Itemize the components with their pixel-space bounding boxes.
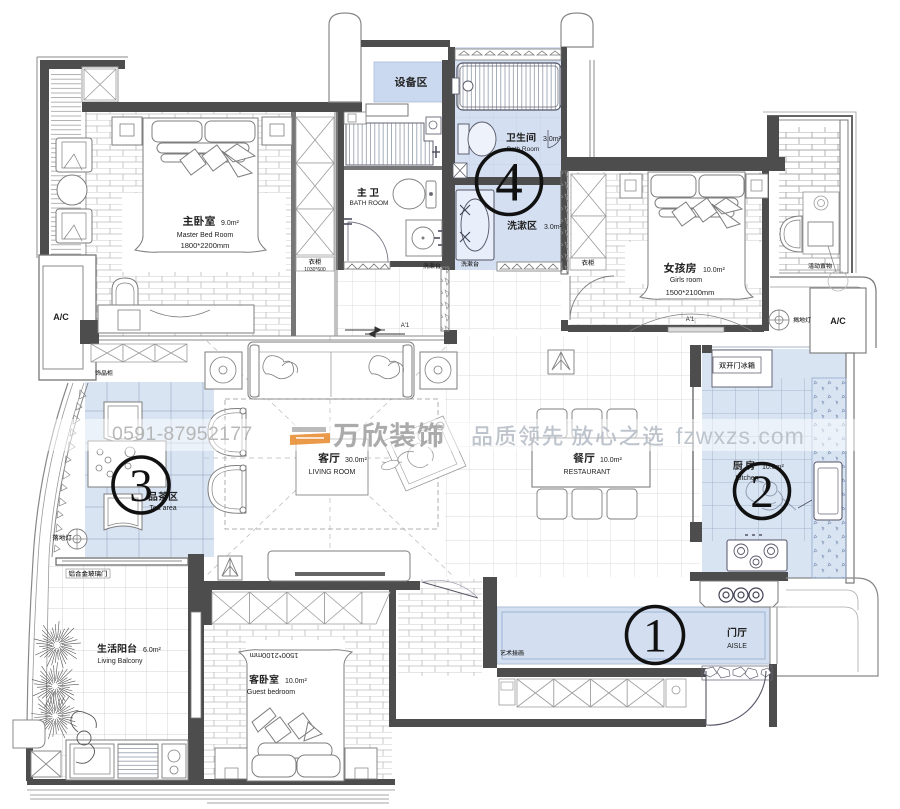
svg-text:AISLE: AISLE <box>727 643 747 650</box>
svg-text:10.0m²: 10.0m² <box>600 457 622 464</box>
svg-text:A/C: A/C <box>53 312 69 322</box>
svg-text:2: 2 <box>750 466 774 518</box>
svg-text:Master Bed Room: Master Bed Room <box>177 232 234 239</box>
svg-text:3.0m²: 3.0m² <box>543 136 562 143</box>
svg-text:RESTAURANT: RESTAURANT <box>564 469 612 476</box>
svg-text:A'1: A'1 <box>686 317 695 323</box>
svg-text:Guest bedroom: Guest bedroom <box>247 689 295 696</box>
svg-text:1030*600: 1030*600 <box>304 267 326 273</box>
svg-text:1800*2200mm: 1800*2200mm <box>181 241 230 250</box>
svg-text:10.0m²: 10.0m² <box>703 267 725 274</box>
svg-text:3.0m²: 3.0m² <box>544 224 563 231</box>
svg-text:9.0m²: 9.0m² <box>221 220 240 227</box>
svg-text:6.0m²: 6.0m² <box>143 647 162 654</box>
svg-text:A'1: A'1 <box>401 323 410 329</box>
svg-text:fzwxzs.com: fzwxzs.com <box>676 423 805 449</box>
svg-text:1500*2100mm: 1500*2100mm <box>250 651 299 660</box>
svg-text:30.0m²: 30.0m² <box>345 457 367 464</box>
svg-text:Living Balcony: Living Balcony <box>97 658 143 665</box>
svg-text:1: 1 <box>643 609 667 662</box>
svg-text:Girls room: Girls room <box>670 277 702 284</box>
svg-text:A/C: A/C <box>830 316 846 326</box>
svg-text:4: 4 <box>495 152 523 213</box>
svg-text:0591-87952177: 0591-87952177 <box>112 423 253 445</box>
svg-text:3: 3 <box>129 460 153 512</box>
svg-text:1500*2100mm: 1500*2100mm <box>666 288 715 297</box>
svg-text:LIVING ROOM: LIVING ROOM <box>309 469 356 476</box>
svg-text:10.0m²: 10.0m² <box>285 678 307 685</box>
svg-text:BATH ROOM: BATH ROOM <box>350 200 389 207</box>
